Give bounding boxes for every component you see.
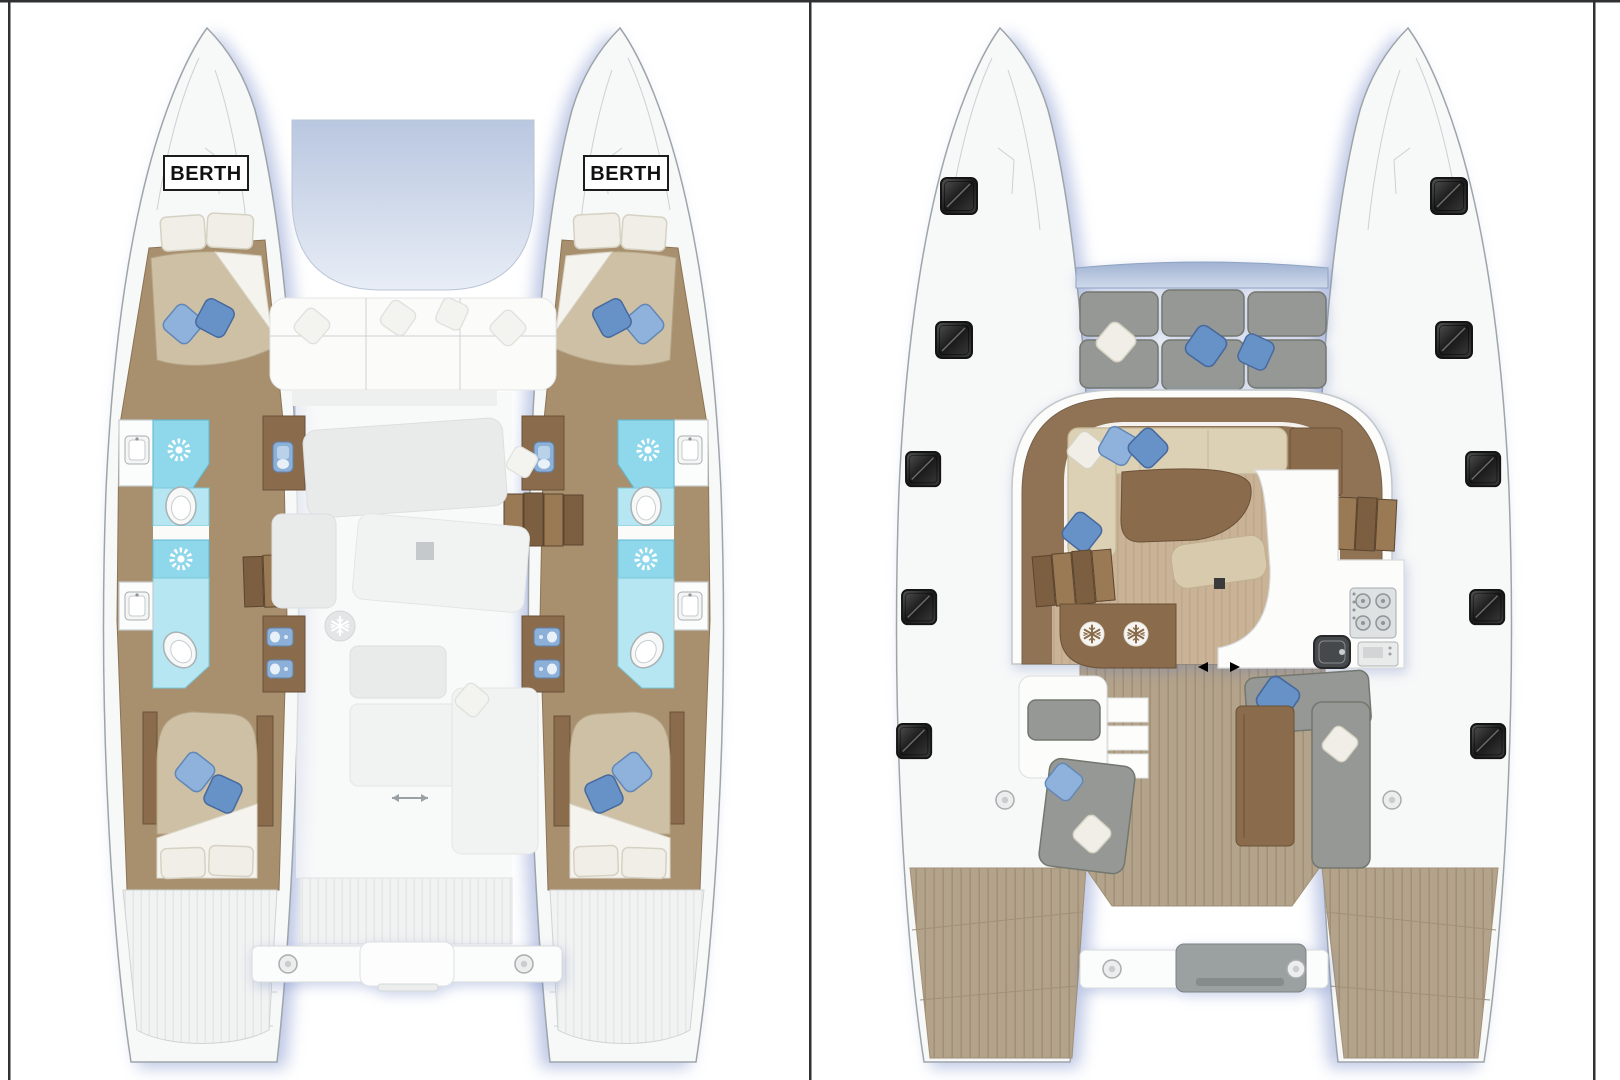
galley-sink-icon xyxy=(1314,636,1350,668)
coachroof-window-ghost xyxy=(292,120,534,290)
bow-lounge xyxy=(1076,262,1328,390)
cockpit-table xyxy=(1236,706,1294,846)
stairs-port-deck xyxy=(1032,548,1115,608)
transom-crossbeam-deck xyxy=(1080,944,1328,992)
berth-label-port: BERTH xyxy=(164,156,248,190)
mast-post xyxy=(1214,578,1225,589)
layout-canvas: BERTH BERTH xyxy=(0,0,1620,1080)
aft-deck xyxy=(300,878,512,944)
saloon xyxy=(1012,390,1404,672)
berth-label-starboard-text: BERTH xyxy=(590,163,661,185)
fridge-counter xyxy=(1060,604,1176,668)
transom-crossbeam xyxy=(252,942,562,991)
fridge-ghost xyxy=(325,611,355,641)
oven-icon xyxy=(1358,642,1398,666)
berth-label-port-text: BERTH xyxy=(170,163,241,185)
catamaran-layout-screenshot: BERTH BERTH xyxy=(0,0,1620,1080)
main-deck-plan xyxy=(897,28,1512,1062)
stove-icon xyxy=(1350,588,1396,638)
cabin-deck-plan: BERTH BERTH xyxy=(104,28,724,1062)
front-window xyxy=(1076,262,1328,288)
berth-label-starboard: BERTH xyxy=(584,156,668,190)
